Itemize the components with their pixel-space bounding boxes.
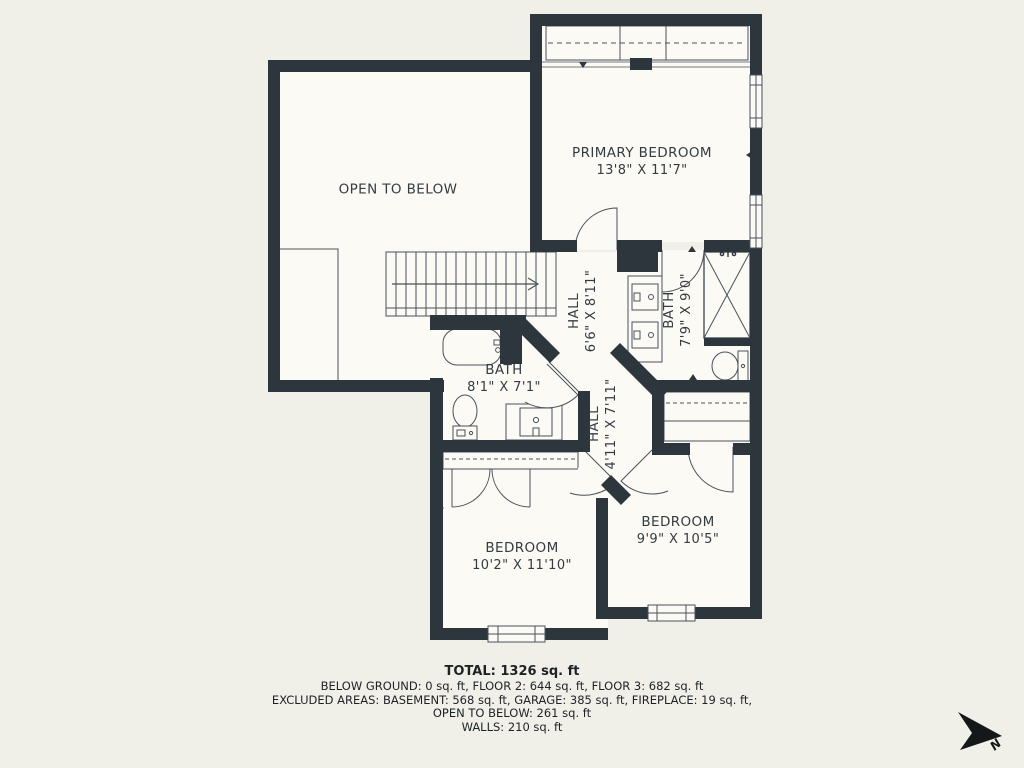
room-dimensions: 10'2" X 11'10" [472,557,572,574]
room-label-hall-bath: BATH 8'1" X 7'1" [467,362,541,396]
room-label-hall-upper: HALL 6'6" X 8'11" [566,270,600,352]
toilet-primary-bath [712,351,748,381]
room-dimensions: 13'8" X 11'7" [572,162,712,179]
summary-excluded: EXCLUDED AREAS: BASEMENT: 568 sq. ft, GA… [0,694,1024,708]
room-name: OPEN TO BELOW [339,182,458,199]
room-label-primary-bath: BATH 7'9" X 9'0" [661,273,695,347]
bathtub [443,329,501,365]
room-label-open-to-below: OPEN TO BELOW [339,182,458,199]
summary-total: TOTAL: 1326 sq. ft [0,664,1024,680]
room-dimensions: 8'1" X 7'1" [467,379,541,396]
vanity-hall-bath [506,404,562,440]
area-summary: TOTAL: 1326 sq. ft BELOW GROUND: 0 sq. f… [0,664,1024,734]
summary-open-to-below: OPEN TO BELOW: 261 sq. ft [0,707,1024,721]
double-vanity-primary-bath [628,276,662,362]
summary-floors: BELOW GROUND: 0 sq. ft, FLOOR 2: 644 sq.… [0,680,1024,694]
room-name: BEDROOM [472,540,572,557]
room-label-bedroom-left: BEDROOM 10'2" X 11'10" [472,540,572,574]
floorplan-canvas: N OPEN TO BELOW PRIMARY BEDROOM 13'8" X … [0,0,1024,768]
room-name: PRIMARY BEDROOM [572,145,712,162]
room-label-hall-lower: HALL 4'11" X 7'11" [586,378,620,469]
room-dimensions: 7'9" X 9'0" [678,273,695,347]
room-name: BEDROOM [637,514,719,531]
room-dimensions: 4'11" X 7'11" [603,378,620,469]
toilet-hall-bath [453,395,477,440]
room-name: BATH [661,273,678,347]
room-name: BATH [467,362,541,379]
room-label-bedroom-right: BEDROOM 9'9" X 10'5" [637,514,719,548]
room-dimensions: 9'9" X 10'5" [637,531,719,548]
room-name: HALL [566,270,583,352]
shower [704,252,750,338]
room-name: HALL [586,378,603,469]
summary-walls: WALLS: 210 sq. ft [0,721,1024,735]
room-label-primary-bedroom: PRIMARY BEDROOM 13'8" X 11'7" [572,145,712,179]
room-dimensions: 6'6" X 8'11" [583,270,600,352]
